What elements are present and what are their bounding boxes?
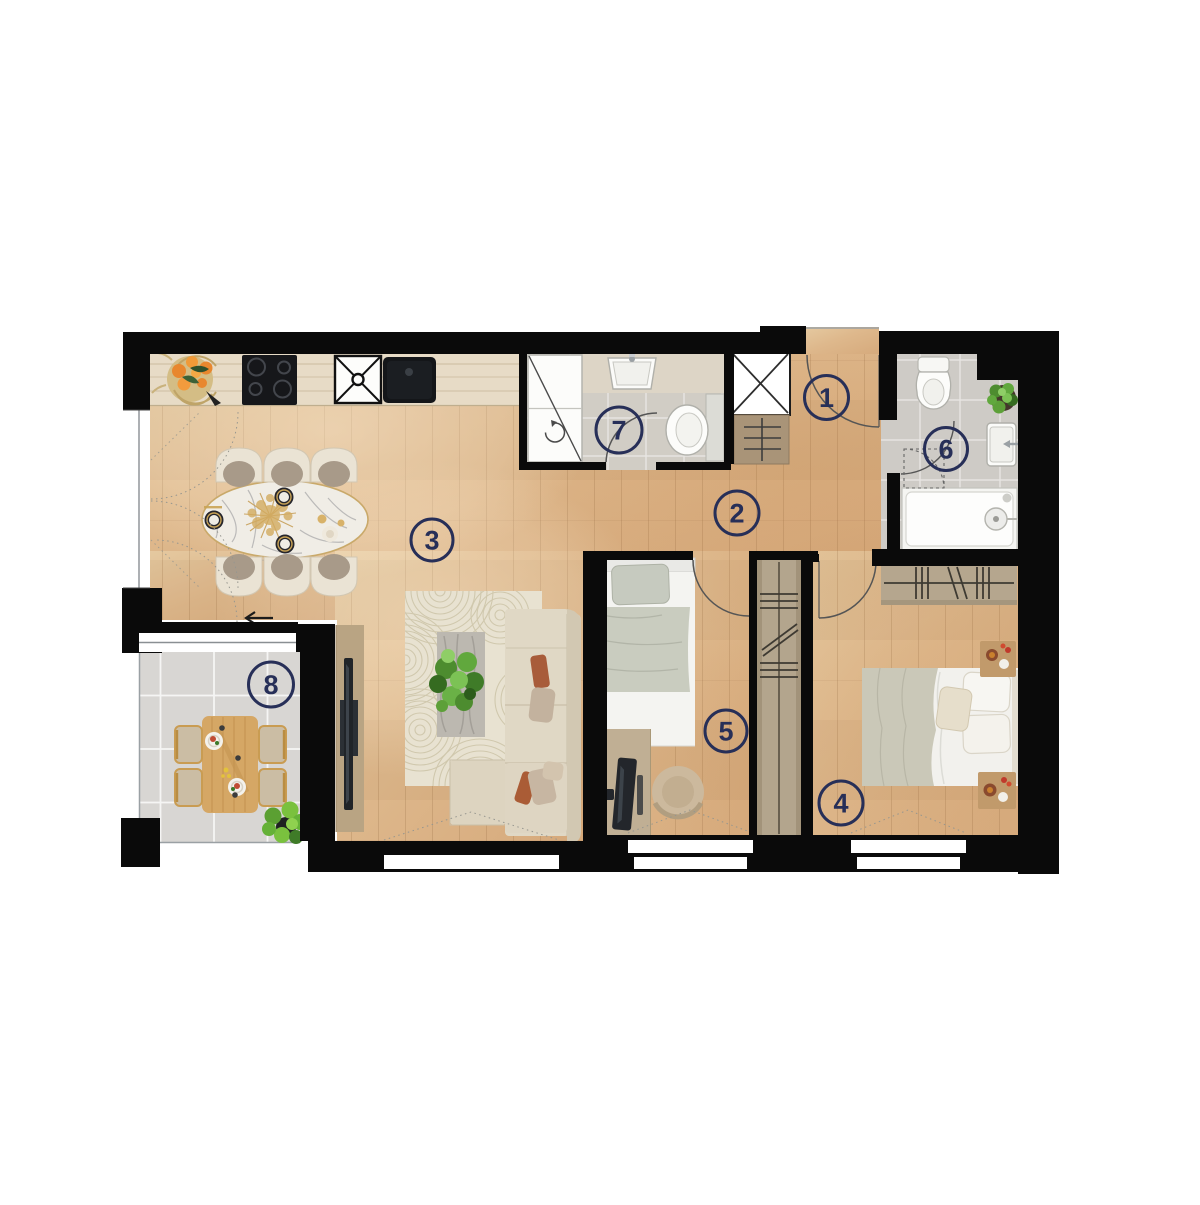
- svg-text:4: 4: [833, 789, 848, 819]
- svg-text:1: 1: [819, 383, 834, 413]
- svg-text:3: 3: [424, 526, 439, 556]
- svg-text:7: 7: [611, 416, 626, 446]
- svg-text:5: 5: [718, 717, 733, 747]
- svg-text:6: 6: [938, 435, 953, 465]
- svg-text:8: 8: [263, 670, 278, 700]
- svg-text:2: 2: [729, 499, 744, 529]
